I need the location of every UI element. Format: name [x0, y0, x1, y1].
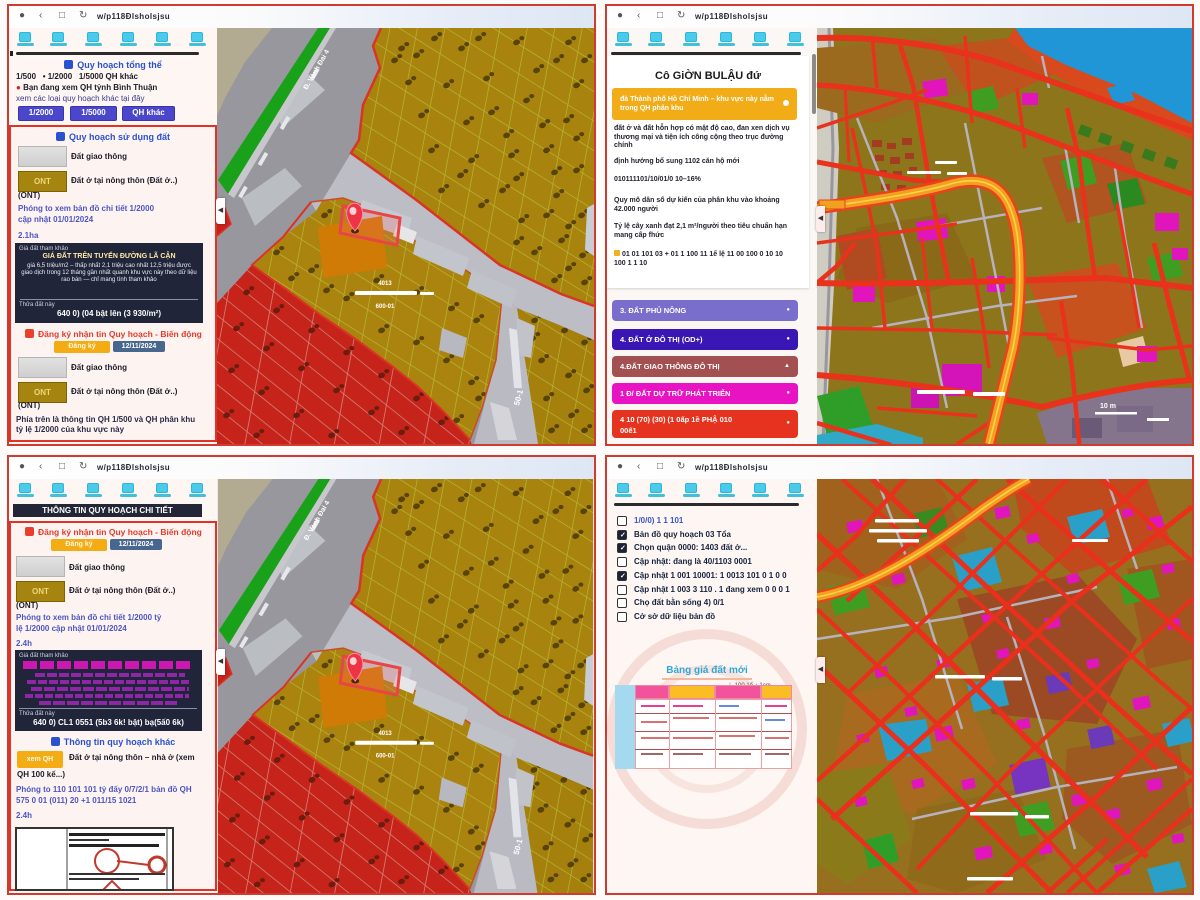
- svg-text:10 m: 10 m: [1100, 403, 1116, 410]
